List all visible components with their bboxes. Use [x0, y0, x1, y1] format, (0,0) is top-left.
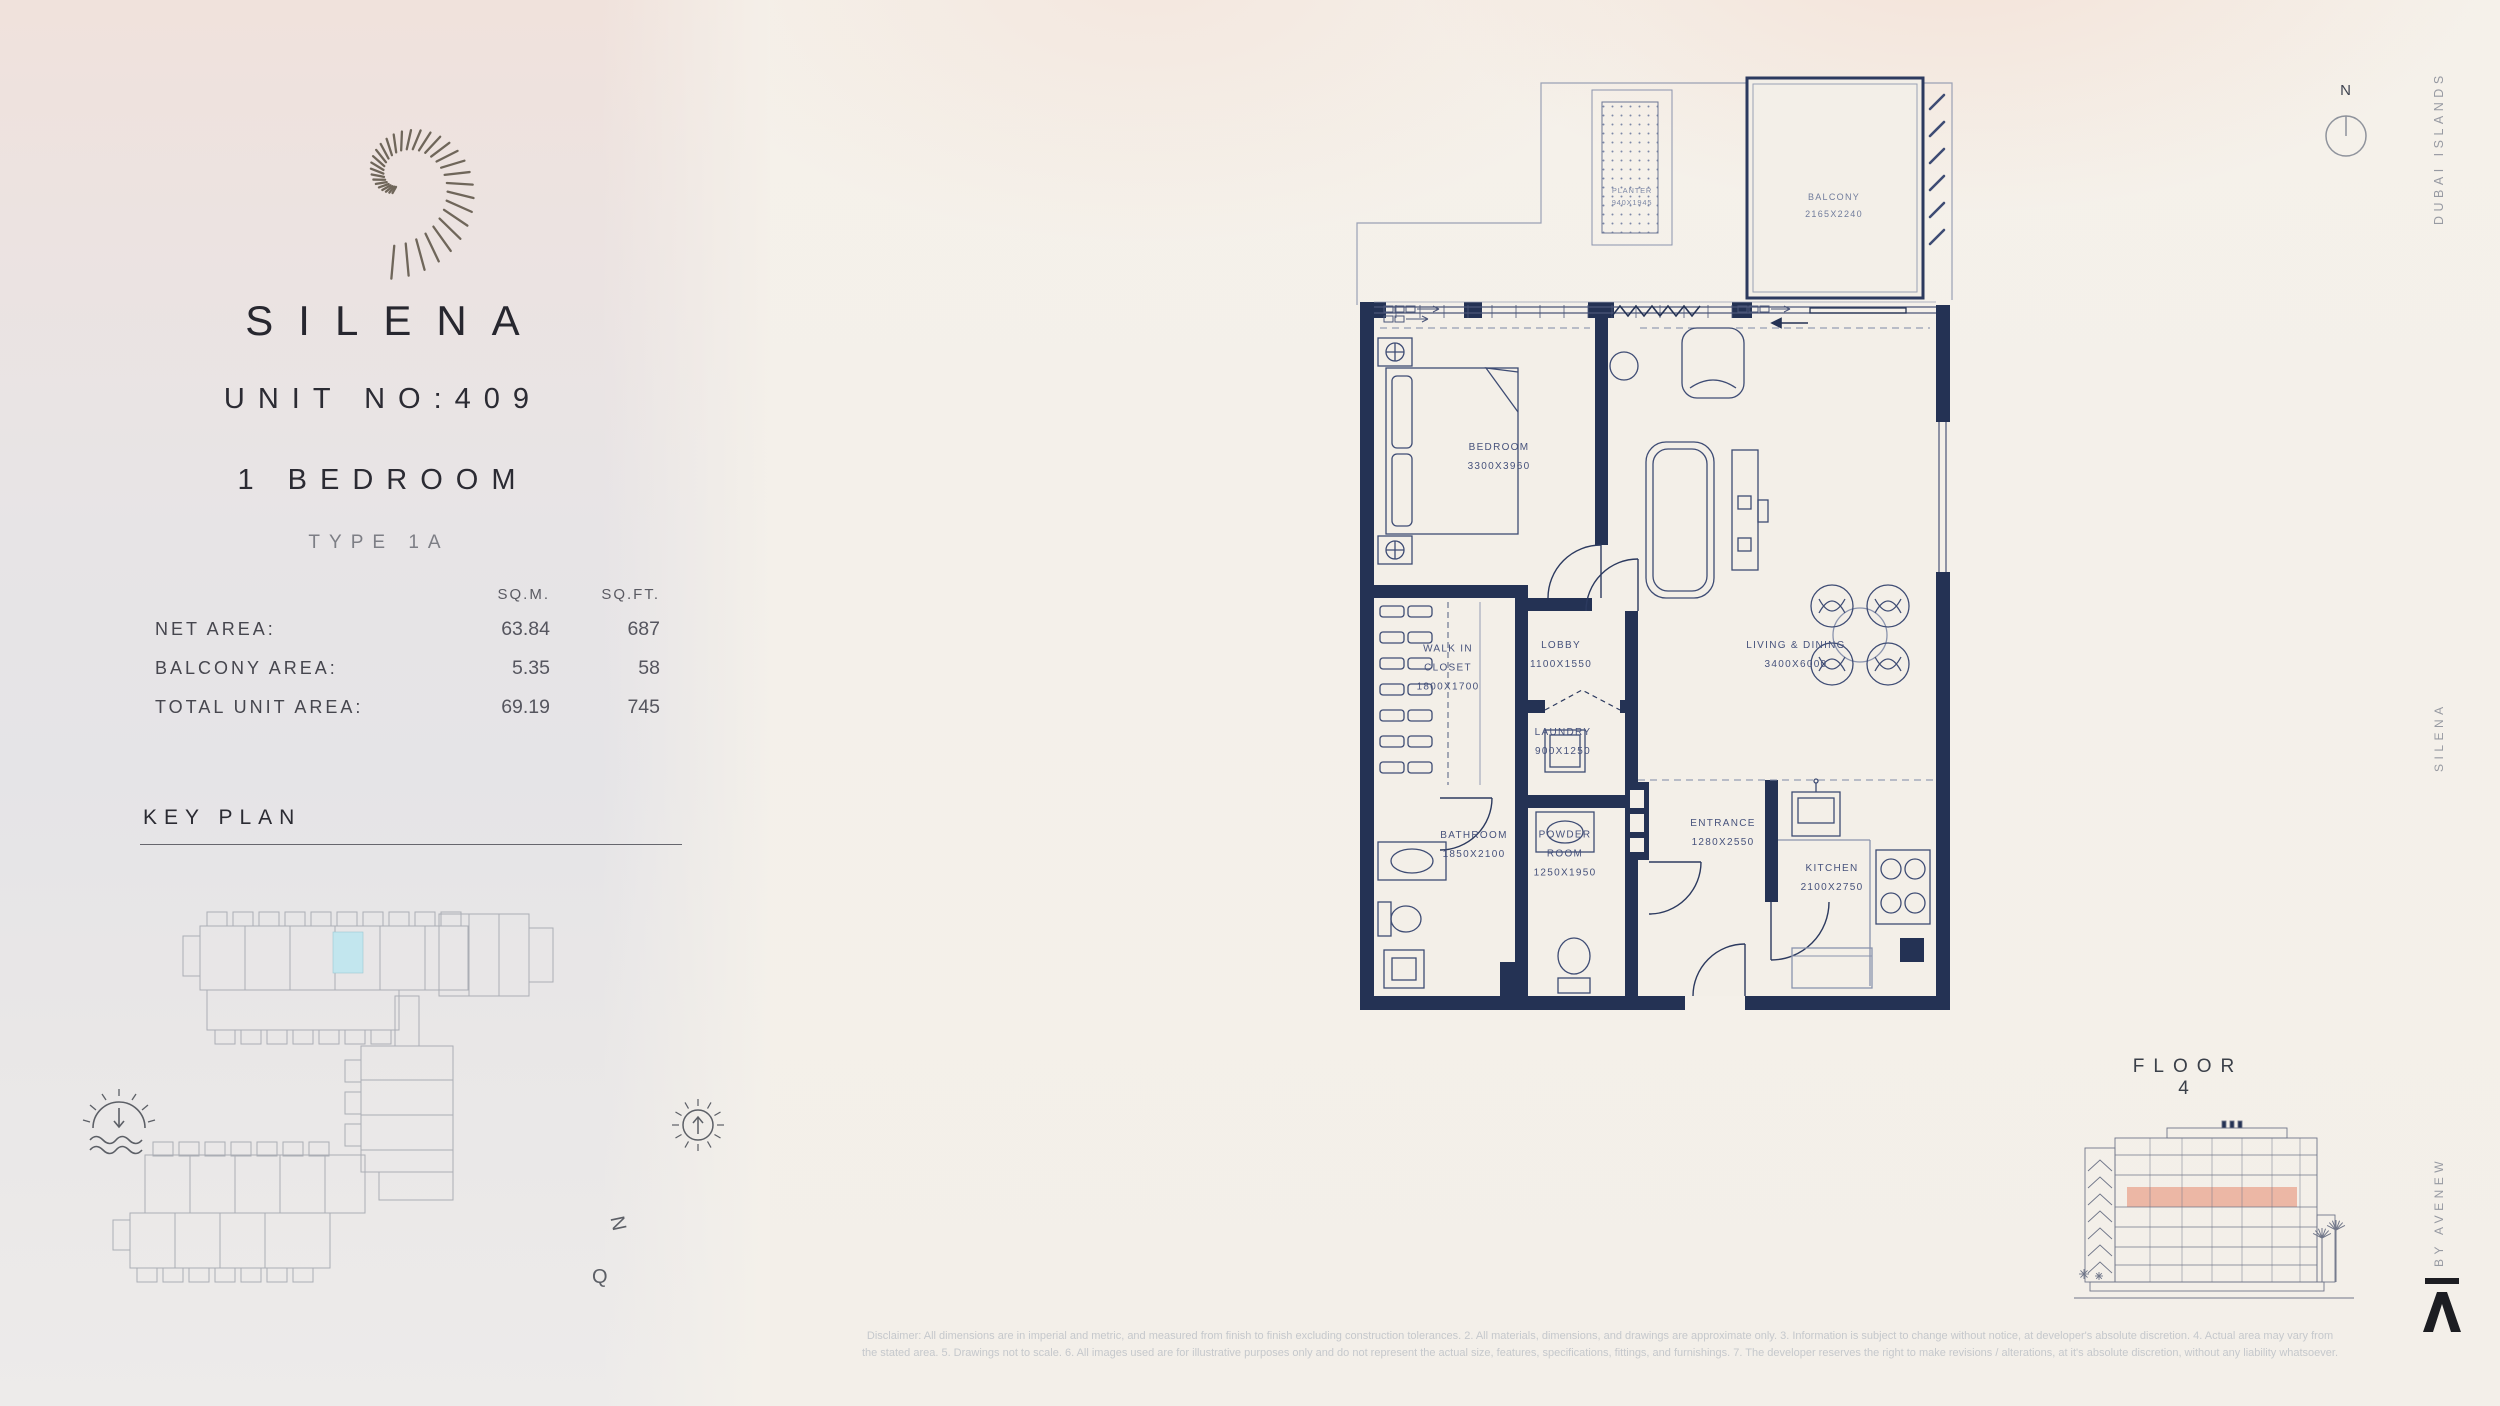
- floor-indicator: FLOOR 4: [2118, 1056, 2258, 1100]
- room-label-walk-in-closet: WALK INCLOSET1800X1700: [1417, 640, 1480, 697]
- room-label-bathroom: BATHROOM1850X2100: [1440, 826, 1507, 864]
- net-area-sqft: 687: [550, 618, 660, 641]
- side-text-location: DUBAI ISLANDS: [2432, 25, 2446, 225]
- key-plan-q-letter: Q: [592, 1266, 608, 1289]
- room-label-planter: PLANTER940X1945: [1612, 185, 1653, 209]
- north-label: N: [2318, 82, 2374, 99]
- avenew-a-logo: [2420, 1278, 2464, 1332]
- table-row: NET AREA: 63.84 687: [155, 618, 665, 641]
- leaf-hatch: [1930, 95, 1944, 244]
- sliding-door: [1810, 308, 1906, 313]
- divider: [140, 844, 682, 845]
- sun-icon: [664, 1090, 732, 1158]
- sunset-icon: [82, 1086, 156, 1162]
- balcony-area-label: BALCONY AREA:: [155, 658, 445, 679]
- page-title: SILENA: [130, 297, 635, 345]
- table-row: TOTAL UNIT AREA: 69.19 745: [155, 696, 665, 719]
- disclaimer-line-2: the stated area. 5. Drawings not to scal…: [820, 1345, 2380, 1362]
- right-window: [1936, 422, 1950, 572]
- net-area-sqm: 63.84: [445, 618, 550, 641]
- total-area-label: TOTAL UNIT AREA:: [155, 697, 445, 718]
- room-label-living-dining: LIVING & DINING3400X6000: [1746, 636, 1846, 674]
- key-plan-map: [95, 870, 755, 1310]
- floor-plan: [1340, 50, 2020, 1010]
- building-top: [183, 912, 553, 1044]
- side-text-developer: BY AVENEW: [2432, 1112, 2446, 1267]
- north-arrow-icon: [2320, 108, 2372, 160]
- side-text-brand: SILENA: [2432, 672, 2446, 772]
- room-label-balcony: BALCONY2165X2240: [1805, 189, 1863, 223]
- area-table-header: SQ.M. SQ.FT.: [155, 586, 665, 603]
- table-row: BALCONY AREA: 5.35 58: [155, 657, 665, 680]
- room-label-lobby: LOBBY1100X1550: [1530, 636, 1592, 674]
- room-label-entrance: ENTRANCE1280X2550: [1690, 814, 1755, 852]
- room-label-powder-room: POWDERROOM1250X1950: [1534, 826, 1597, 883]
- room-label-bedroom: BEDROOM3300X3960: [1468, 438, 1531, 476]
- room-label-kitchen: KITCHEN2100X2750: [1801, 859, 1864, 897]
- highlighted-unit: [333, 932, 363, 973]
- col-sqm: SQ.M.: [445, 586, 550, 603]
- balcony-area-sqm: 5.35: [445, 657, 550, 680]
- total-area-sqft: 745: [550, 696, 660, 719]
- net-area-label: NET AREA:: [155, 619, 445, 640]
- col-sqft: SQ.FT.: [550, 586, 660, 603]
- closet-door-panels: [1630, 790, 1644, 852]
- info-panel: SILENA UNIT NO:409 1 BEDROOM TYPE 1A SQ.…: [0, 0, 770, 1406]
- disclaimer-text: Disclaimer: All dimensions are in imperi…: [820, 1328, 2380, 1362]
- planter-box: [1592, 90, 1672, 245]
- balcony-area: [1747, 78, 1923, 298]
- unit-type: TYPE 1A: [130, 532, 619, 554]
- building-elevation: [2072, 1110, 2357, 1305]
- spiral-shell-logo: [300, 70, 500, 290]
- total-area-sqm: 69.19: [445, 696, 550, 719]
- disclaimer-line-1: Disclaimer: All dimensions are in imperi…: [820, 1328, 2380, 1345]
- unit-number: UNIT NO:409: [130, 383, 623, 416]
- key-plan-title: KEY PLAN: [143, 806, 301, 830]
- room-label-laundry: LAUNDRY900X1250: [1535, 723, 1592, 761]
- podium: [2074, 1269, 2354, 1298]
- building-bottom: [113, 1142, 365, 1282]
- palm-trees: [2313, 1220, 2345, 1282]
- balcony-area-sqft: 58: [550, 657, 660, 680]
- bedroom-count: 1 BEDROOM: [130, 464, 623, 497]
